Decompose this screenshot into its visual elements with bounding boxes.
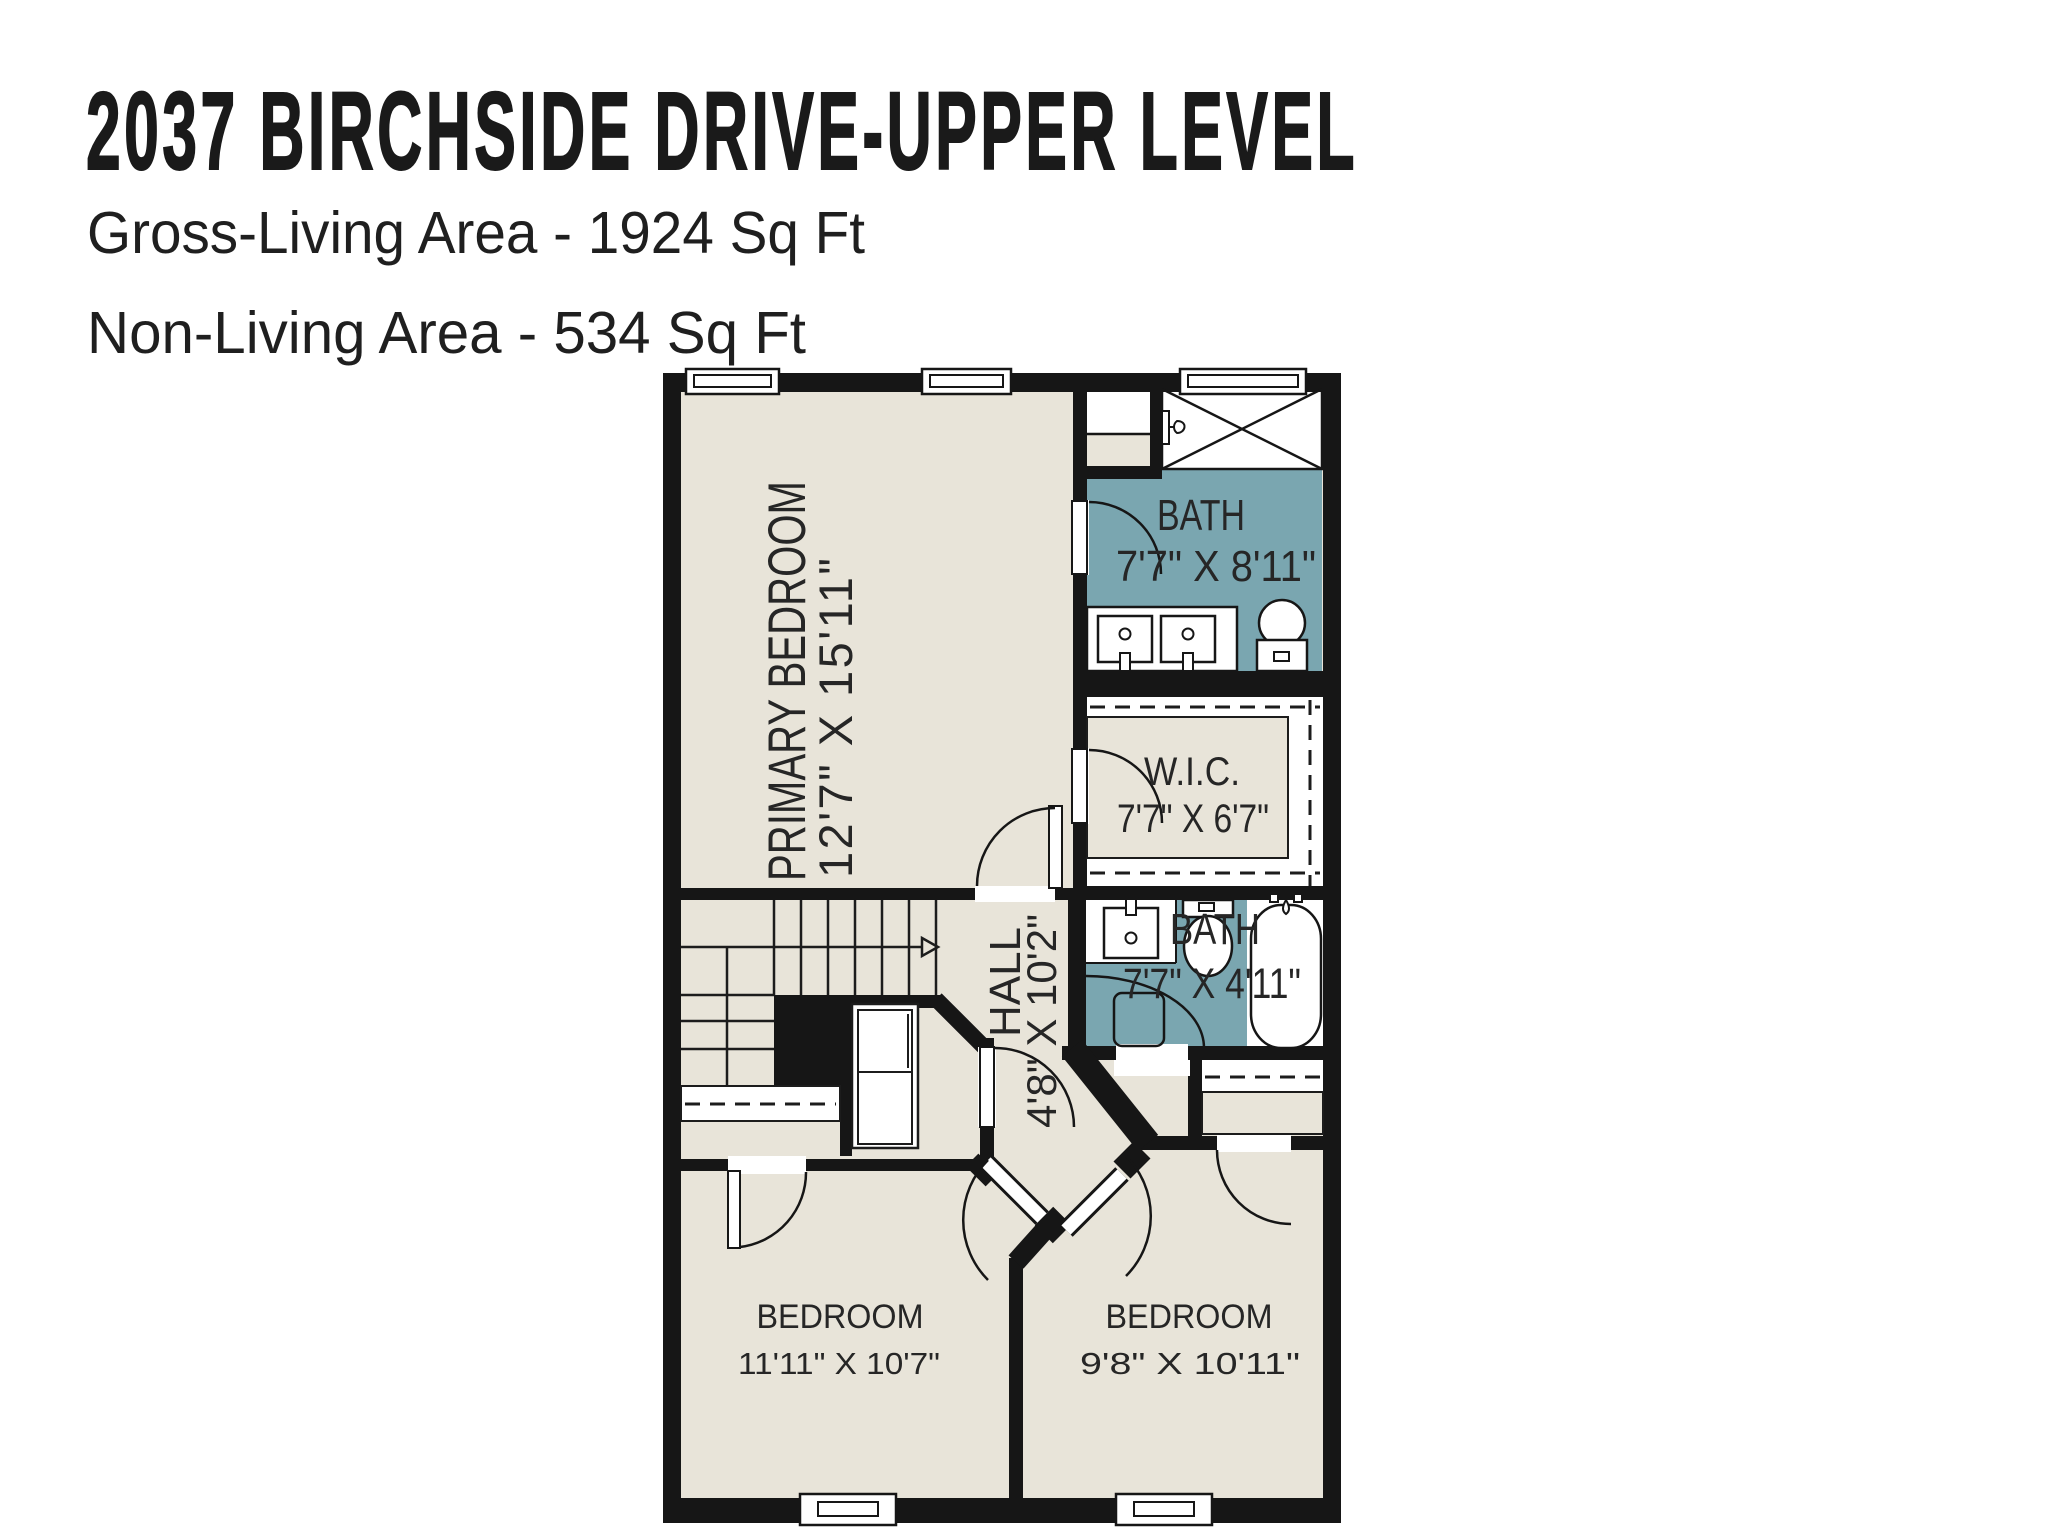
svg-text:BEDROOM: BEDROOM (757, 1298, 924, 1336)
svg-text:Non-Living Area - 534 Sq Ft: Non-Living Area - 534 Sq Ft (87, 300, 806, 366)
svg-text:BATH: BATH (1170, 905, 1260, 954)
svg-text:7'7" X 6'7": 7'7" X 6'7" (1117, 797, 1269, 841)
svg-text:BEDROOM: BEDROOM (1106, 1298, 1273, 1336)
svg-text:12'7" X 15'11": 12'7" X 15'11" (809, 558, 862, 878)
svg-text:2037 BIRCHSIDE DRIVE-UPPER LEV: 2037 BIRCHSIDE DRIVE-UPPER LEVEL (86, 70, 1358, 193)
svg-text:W.I.C.: W.I.C. (1144, 750, 1240, 794)
svg-text:11'11" X 10'7": 11'11" X 10'7" (738, 1346, 940, 1381)
svg-text:7'7" X 4'11": 7'7" X 4'11" (1123, 960, 1301, 1008)
svg-text:4'8" X 10'2": 4'8" X 10'2" (1018, 914, 1065, 1128)
svg-text:7'7" X 8'11": 7'7" X 8'11" (1116, 542, 1316, 591)
svg-text:Gross-Living Area - 1924 Sq Ft: Gross-Living Area - 1924 Sq Ft (87, 200, 865, 266)
svg-text:BATH: BATH (1157, 491, 1245, 540)
svg-text:9'8" X 10'11": 9'8" X 10'11" (1080, 1346, 1300, 1381)
